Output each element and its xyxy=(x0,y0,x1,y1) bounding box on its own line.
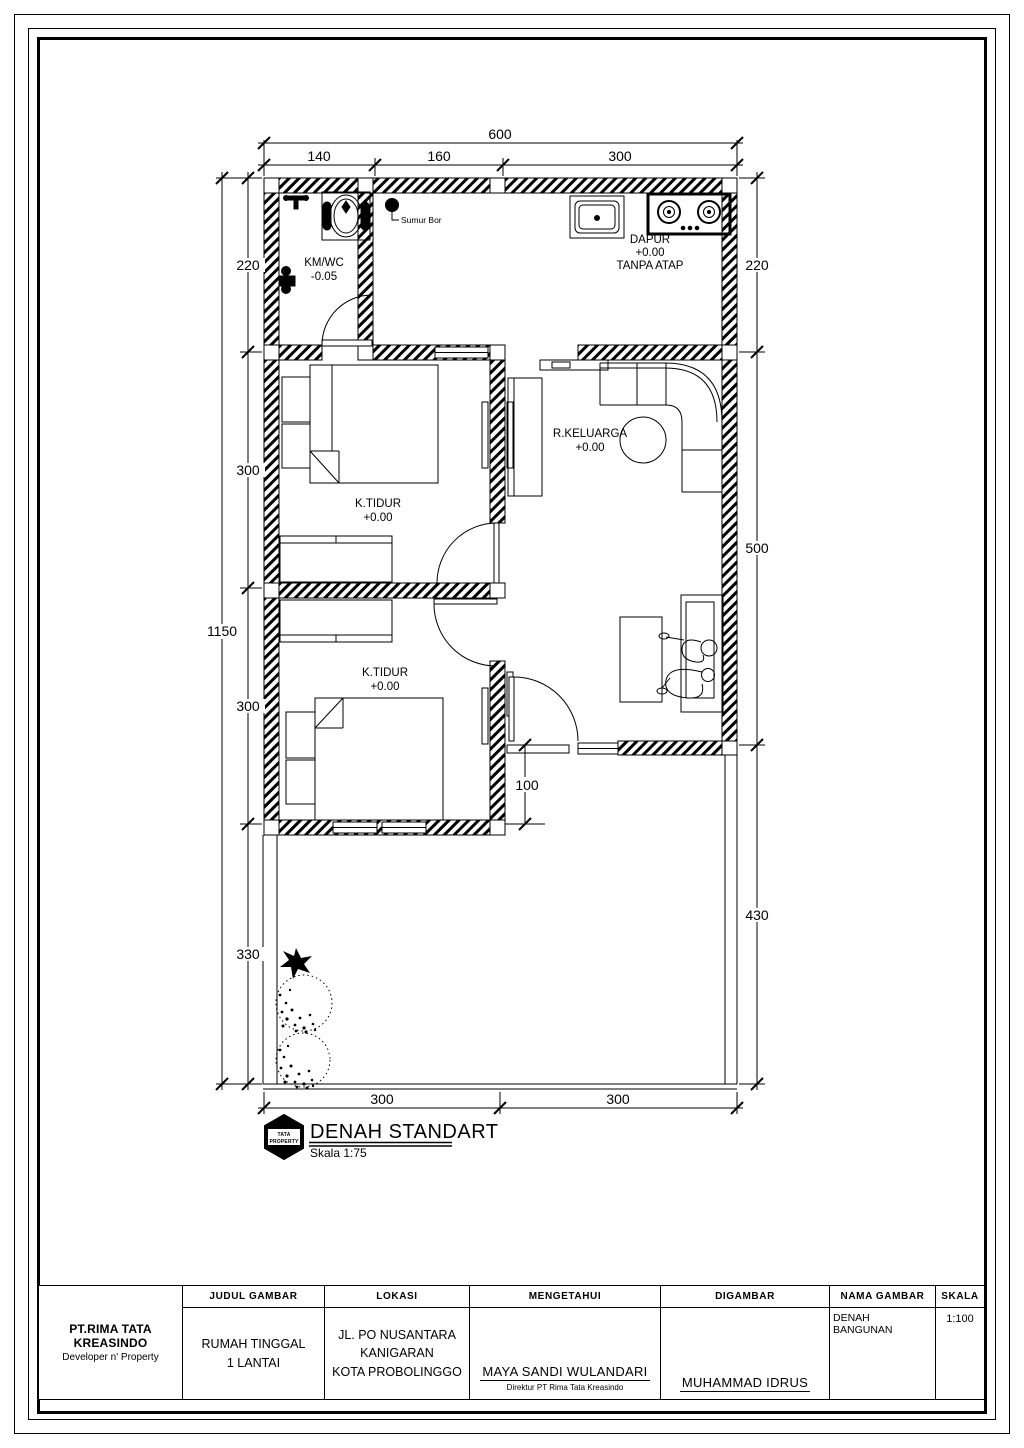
digambar-header: DIGAMBAR xyxy=(661,1286,829,1308)
floor-plan-drawing: 600 140 160 300 1150 220 300 300 330 xyxy=(0,0,1024,1270)
svg-text:PROPERTY: PROPERTY xyxy=(269,1139,299,1145)
mengetahui-signature: MAYA SANDI WULANDARI Direktur PT Rima Ta… xyxy=(470,1308,660,1399)
room-keluarga-level: +0.00 xyxy=(575,442,604,454)
dim-left-3: 300 xyxy=(236,698,260,714)
dim-top-1: 140 xyxy=(307,148,331,164)
lokasi-header: LOKASI xyxy=(325,1286,469,1308)
nama-gambar-header: NAMA GAMBAR xyxy=(830,1286,935,1308)
drawing-sheet: 600 140 160 300 1150 220 300 300 330 xyxy=(0,0,1024,1448)
dim-total-width: 600 xyxy=(488,126,512,142)
room-bedroom2-level: +0.00 xyxy=(370,681,399,693)
title-block: PT.RIMA TATA KREASINDO Developer n' Prop… xyxy=(38,1285,985,1400)
living-room-furniture xyxy=(508,360,723,712)
sideboard xyxy=(540,360,608,370)
skala-value: 1:100 xyxy=(936,1308,984,1399)
room-dapur-level: +0.00 xyxy=(635,247,664,259)
plan-title: DENAH STANDART xyxy=(310,1121,499,1143)
nightstand xyxy=(282,424,310,468)
shrub-icon xyxy=(276,1033,330,1090)
lokasi-column: LOKASI JL. PO NUSANTARA KANIGARAN KOTA P… xyxy=(325,1286,470,1399)
mengetahui-header: MENGETAHUI xyxy=(470,1286,660,1308)
dim-top-3: 300 xyxy=(608,148,632,164)
dining-table xyxy=(620,617,662,702)
dim-left-total: 1150 xyxy=(207,623,237,639)
bedroom2-furniture xyxy=(280,600,443,820)
kitchen-fixtures xyxy=(570,194,730,238)
faucet-icon xyxy=(284,196,309,210)
room-keluarga-name: R.KELUARGA xyxy=(553,428,627,440)
nama-gambar-column: NAMA GAMBAR DENAH BANGUNAN xyxy=(830,1286,936,1399)
dim-bottom-1: 300 xyxy=(370,1091,394,1107)
digambar-column: DIGAMBAR MUHAMMAD IDRUS xyxy=(661,1286,830,1399)
bed xyxy=(310,365,438,483)
lokasi-value: JL. PO NUSANTARA KANIGARAN KOTA PROBOLIN… xyxy=(325,1308,469,1399)
bedroom1-furniture xyxy=(280,365,438,582)
dim-right-2: 500 xyxy=(745,540,769,556)
shower-tap-icon xyxy=(280,267,295,294)
door-bedroom1 xyxy=(437,523,499,583)
shrub-icon xyxy=(276,975,332,1034)
dim-left-2: 300 xyxy=(236,462,260,478)
bench-cabinet xyxy=(681,595,723,712)
mengetahui-column: MENGETAHUI MAYA SANDI WULANDARI Direktur… xyxy=(470,1286,661,1399)
dim-bottom-2: 300 xyxy=(606,1091,630,1107)
svg-text:TATA: TATA xyxy=(277,1132,290,1138)
stove-icon xyxy=(648,194,730,234)
room-kmwc-level: -0.05 xyxy=(311,271,337,283)
room-dapur-name: DAPUR xyxy=(630,234,670,246)
company-name: PT.RIMA TATA KREASINDO xyxy=(39,1322,182,1350)
skala-header: SKALA xyxy=(936,1286,984,1308)
skala-column: SKALA 1:100 xyxy=(936,1286,984,1399)
room-dapur-note: TANPA ATAP xyxy=(617,260,684,272)
person-figure xyxy=(659,633,717,662)
room-bedroom1-name: K.TIDUR xyxy=(355,498,401,510)
room-kmwc-name: KM/WC xyxy=(304,257,344,269)
room-bedroom1-level: +0.00 xyxy=(363,512,392,524)
dim-top-2: 160 xyxy=(427,148,451,164)
company-cell: PT.RIMA TATA KREASINDO Developer n' Prop… xyxy=(39,1286,183,1399)
nama-gambar-value: DENAH BANGUNAN xyxy=(830,1308,935,1399)
dim-right-3: 430 xyxy=(745,907,769,923)
company-tagline: Developer n' Property xyxy=(62,1352,158,1363)
nightstand xyxy=(282,377,310,422)
digambar-signature: MUHAMMAD IDRUS xyxy=(661,1308,829,1399)
coffee-table xyxy=(620,417,666,463)
judul-header: JUDUL GAMBAR xyxy=(183,1286,324,1308)
nightstand xyxy=(286,760,315,804)
door-main-entrance xyxy=(507,677,578,753)
plan-scale-label: Skala 1:75 xyxy=(310,1146,367,1160)
door-bedroom2 xyxy=(434,599,497,666)
dim-left-4: 330 xyxy=(236,946,260,962)
dim-right-1: 220 xyxy=(745,257,769,273)
dim-porch: 100 xyxy=(515,777,539,793)
sink-icon xyxy=(570,196,624,238)
drawing-title-block: TATA PROPERTY DENAH STANDART Skala 1:75 xyxy=(265,1115,499,1160)
judul-value: RUMAH TINGGAL 1 LANTAI xyxy=(183,1308,324,1399)
nightstand xyxy=(286,712,315,758)
judul-column: JUDUL GAMBAR RUMAH TINGGAL 1 LANTAI xyxy=(183,1286,325,1399)
well-label: Sumur Bor xyxy=(401,215,442,225)
well-marker xyxy=(386,199,400,221)
plant-flower-icon xyxy=(280,948,312,979)
company-logo-icon: TATA PROPERTY xyxy=(265,1115,303,1159)
dim-left-1: 220 xyxy=(236,257,260,273)
bed xyxy=(315,698,443,820)
room-bedroom2-name: K.TIDUR xyxy=(362,667,408,679)
